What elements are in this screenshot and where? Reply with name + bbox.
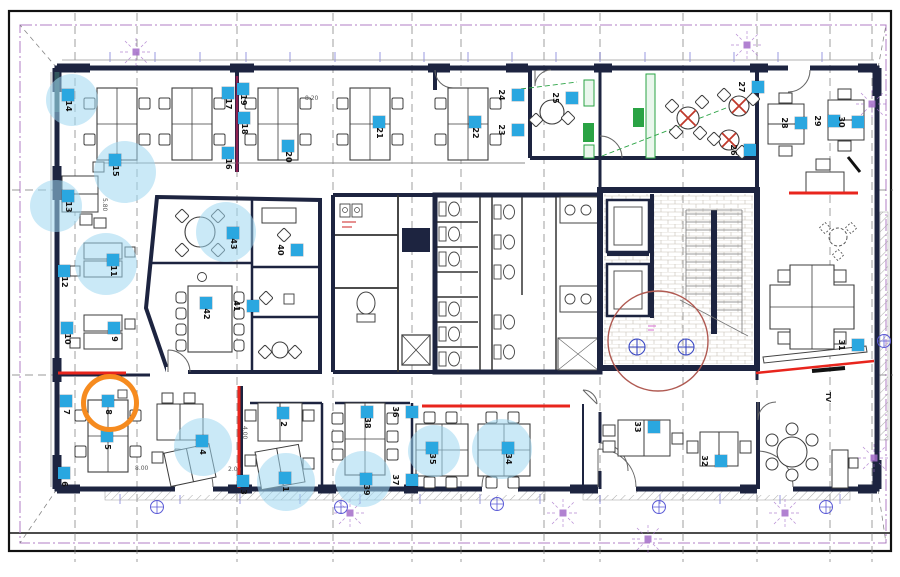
desk-marker[interactable]: 26 [744,144,756,156]
desk-marker[interactable]: 21 [373,116,385,128]
desk-marker-number: 30 [836,112,846,132]
desk-marker-number: 23 [496,120,506,140]
desk-marker[interactable]: 31 [852,339,864,351]
desk-marker[interactable]: 43 [227,227,239,239]
desk-marker-number: 14 [63,96,73,116]
desk-marker[interactable]: 39 [360,473,372,485]
desk-marker[interactable]: 37 [406,474,418,486]
desk-marker-number: 6 [59,474,69,494]
desk-marker[interactable]: 38 [361,406,373,418]
marker-layer: 1234567891011121314151617181920212223242… [0,0,900,577]
desk-marker-number: 38 [362,413,372,433]
desk-marker[interactable]: 41 [247,300,259,312]
desk-marker-number: 31 [836,335,846,355]
desk-marker-number: 16 [223,154,233,174]
desk-marker[interactable]: 42 [200,297,212,309]
desk-marker[interactable]: 17 [222,87,234,99]
desk-marker-number: 18 [239,119,249,139]
desk-marker-number: 29 [812,111,822,131]
desk-marker[interactable]: 19 [237,83,249,95]
desk-marker[interactable]: 33 [648,421,660,433]
desk-marker[interactable]: 13 [62,190,74,202]
desk-marker-number: 32 [699,451,709,471]
floor-plan-canvas: 8.20 5.80 8.00 2.00 4.00 TV 123456789101… [0,0,900,577]
desk-marker-number: 35 [427,449,437,469]
desk-marker-number: 43 [228,234,238,254]
desk-marker[interactable]: 36 [406,406,418,418]
desk-marker-number: 27 [736,77,746,97]
desk-marker-number: 7 [61,402,71,422]
desk-marker[interactable]: 4 [196,435,208,447]
desk-marker[interactable]: 16 [222,147,234,159]
desk-marker[interactable]: 24 [512,89,524,101]
desk-marker[interactable]: 15 [109,154,121,166]
desk-marker-number: 36 [390,402,400,422]
desk-marker-number: 12 [59,272,69,292]
desk-marker-number: 28 [779,113,789,133]
desk-marker[interactable]: 3 [237,475,249,487]
desk-marker[interactable]: 34 [502,442,514,454]
desk-marker[interactable]: 9 [108,322,120,334]
desk-marker-number: 1 [280,479,290,499]
desk-marker-number: 21 [374,123,384,143]
desk-marker-number: 15 [110,161,120,181]
desk-marker-number: 26 [728,140,738,160]
desk-marker-number: 42 [201,304,211,324]
desk-marker[interactable]: 10 [61,322,73,334]
desk-marker-number: 34 [503,449,513,469]
desk-marker[interactable]: 7 [60,395,72,407]
desk-marker[interactable]: 35 [426,442,438,454]
desk-marker[interactable]: 28 [795,117,807,129]
desk-marker[interactable]: 11 [107,254,119,266]
desk-marker-number: 2 [278,414,288,434]
desk-marker-number: 22 [470,123,480,143]
desk-marker[interactable]: 23 [512,124,524,136]
desk-marker-number: 39 [361,480,371,500]
desk-marker-number: 11 [108,261,118,281]
desk-marker[interactable]: 25 [566,92,578,104]
desk-marker[interactable]: 32 [715,455,727,467]
desk-marker-number: 25 [550,88,560,108]
desk-marker[interactable]: 6 [58,467,70,479]
desk-marker[interactable]: 12 [58,265,70,277]
desk-marker-number: 33 [632,417,642,437]
selection-circle-orange [81,374,139,432]
desk-marker[interactable]: 22 [469,116,481,128]
desk-marker-number: 13 [63,197,73,217]
desk-marker[interactable]: 30 [852,116,864,128]
desk-marker-number: 10 [62,329,72,349]
desk-marker[interactable]: 2 [277,407,289,419]
desk-marker-number: 17 [223,94,233,114]
desk-marker[interactable]: 27 [752,81,764,93]
desk-marker-number: 4 [197,442,207,462]
desk-marker-number: 41 [231,296,241,316]
desk-marker-number: 5 [102,437,112,457]
desk-marker[interactable]: 18 [238,112,250,124]
desk-marker-number: 40 [275,240,285,260]
desk-marker[interactable]: 1 [279,472,291,484]
desk-marker-number: 9 [109,329,119,349]
desk-marker-number: 37 [390,470,400,490]
desk-marker-number: 20 [283,147,293,167]
desk-marker[interactable]: 14 [62,89,74,101]
desk-marker[interactable]: 20 [282,140,294,152]
desk-marker-number: 3 [238,482,248,502]
desk-marker-number: 19 [238,90,248,110]
desk-marker[interactable]: 40 [291,244,303,256]
desk-marker-number: 24 [496,85,506,105]
